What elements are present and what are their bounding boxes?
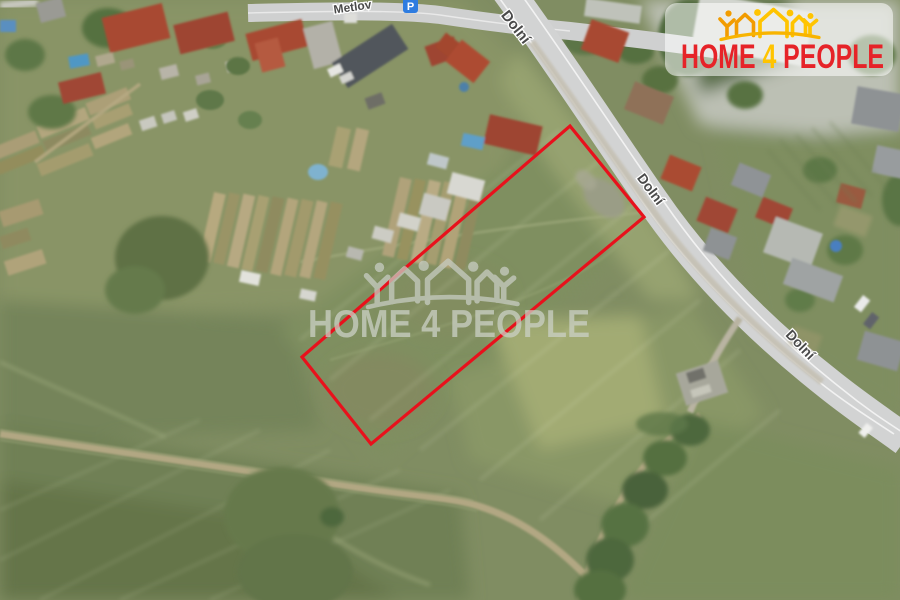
svg-text:HOME 4 PEOPLE: HOME 4 PEOPLE	[308, 303, 590, 346]
svg-text:HOME 4 PEOPLE: HOME 4 PEOPLE	[681, 38, 884, 76]
svg-text:P: P	[407, 1, 414, 13]
